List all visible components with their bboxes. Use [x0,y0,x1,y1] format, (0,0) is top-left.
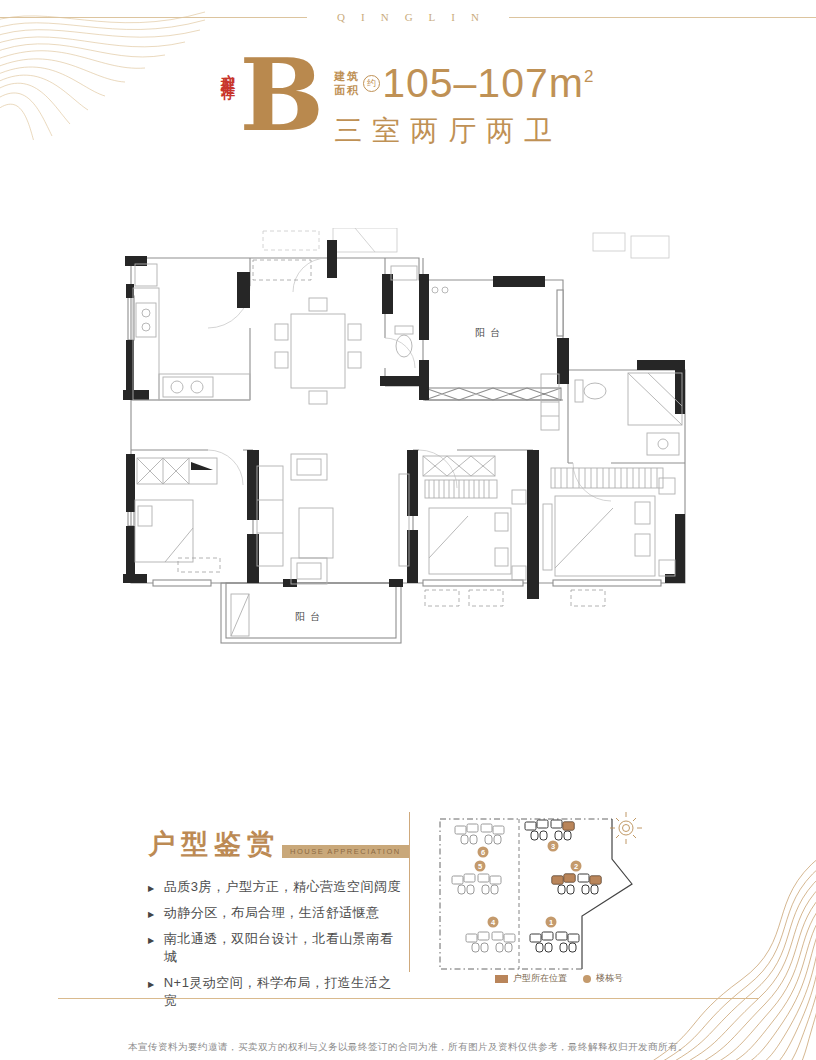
building-1-badge: 1 [546,917,557,928]
approx-circle-badge: 约 [363,75,380,92]
building-3-badge: 3 [548,841,559,852]
feature-item: ▶南北通透，双阳台设计，北看山景南看城 [148,930,403,966]
svg-text:5: 5 [478,862,482,871]
site-plan-legend: 户型所在位置 楼栋号 [495,972,623,985]
brand-name: QINGLIN [307,11,509,23]
unit-header-details: 建筑 面积 约 105–107m2 三室两厅两卫 [334,60,594,150]
layout-summary: 三室两厅两卫 [334,112,594,150]
svg-text:6: 6 [481,848,485,857]
site-plan: 6 5 4 3 2 1 [430,804,665,974]
building-6-footprint [455,824,504,844]
area-label-top: 建筑 [334,70,360,83]
feature-list: ▶品质3房，户型方正，精心营造空间阔度 ▶动静分区，布局合理，生活舒适惬意 ▶南… [148,878,403,1010]
area-superscript: 2 [584,67,594,86]
svg-text:1: 1 [549,918,553,927]
brand-bar: QINGLIN [0,10,816,24]
feature-item: ▶N+1灵动空间，科学布局，打造生活之宽 [148,974,403,1010]
feature-item: ▶品质3房，户型方正，精心营造空间阔度 [148,878,403,896]
south-balcony-label: 阳台 [295,611,325,622]
area-value-text: 105–107m [382,60,584,106]
building-2-footprint [552,874,601,894]
area-row: 建筑 面积 约 105–107m2 [334,60,594,107]
building-number-swatch [583,975,591,983]
svg-text:2: 2 [574,862,578,871]
unit-location-label: 户型所在位置 [513,972,567,985]
appreciation-title-row: 户型鉴赏 HOUSE APPRECIATION [148,826,403,862]
brand-rule-left [0,17,307,18]
feature-text: 南北通透，双阳台设计，北看山景南看城 [164,930,403,966]
unit-letter: B [240,56,325,134]
appreciation-title: 户型鉴赏 [148,826,280,862]
unit-header: 户型推荐 B 建筑 面积 约 105–107m2 三室两厅两卫 [0,52,816,150]
area-label-bottom: 面积 [334,84,360,97]
building-1-footprint [530,932,579,952]
footer-separator [58,998,758,999]
north-balcony-label: 阳台 [475,327,505,338]
building-3-footprint [525,820,574,840]
bullet-arrow-icon: ▶ [148,936,155,945]
feature-item: ▶动静分区，布局合理，生活舒适惬意 [148,904,403,922]
bullet-arrow-icon: ▶ [148,910,155,919]
feature-text: 动静分区，布局合理，生活舒适惬意 [164,904,380,922]
brochure-page: QINGLIN 户型推荐 B 建筑 面积 约 105–107m2 三室两厅两卫 [0,0,816,1060]
vertical-divider [409,812,410,972]
bullet-arrow-icon: ▶ [148,980,155,989]
area-value: 105–107m2 [382,60,594,107]
svg-text:3: 3 [551,842,555,851]
disclaimer-text: 本宣传资料为要约邀请，买卖双方的权利与义务以最终签订的合同为准，所有图片及资料仅… [0,1041,816,1054]
bullet-arrow-icon: ▶ [148,884,155,893]
building-6-badge: 6 [478,847,489,858]
area-label: 建筑 面积 [334,70,360,96]
feature-text: 品质3房，户型方正，精心营造空间阔度 [164,878,401,896]
building-2-badge: 2 [571,861,582,872]
building-5-footprint [452,874,501,894]
floor-plan-drawing: 阳台 阳台 [123,228,693,653]
building-4-footprint [466,932,515,952]
unit-location-swatch [495,975,508,983]
feature-text: N+1灵动空间，科学布局，打造生活之宽 [164,974,403,1010]
appreciation-section: 户型鉴赏 HOUSE APPRECIATION ▶品质3房，户型方正，精心营造空… [148,826,403,1018]
building-5-badge: 5 [475,861,486,872]
unit-recommend-tag: 户型推荐 [222,62,236,78]
appreciation-subtitle: HOUSE APPRECIATION [282,845,409,858]
gold-swirl-decoration-bottom-right [646,850,816,1060]
brand-rule-right [509,17,816,18]
building-4-badge: 4 [488,917,499,928]
building-number-label: 楼栋号 [596,972,623,985]
compass-icon [610,812,642,844]
